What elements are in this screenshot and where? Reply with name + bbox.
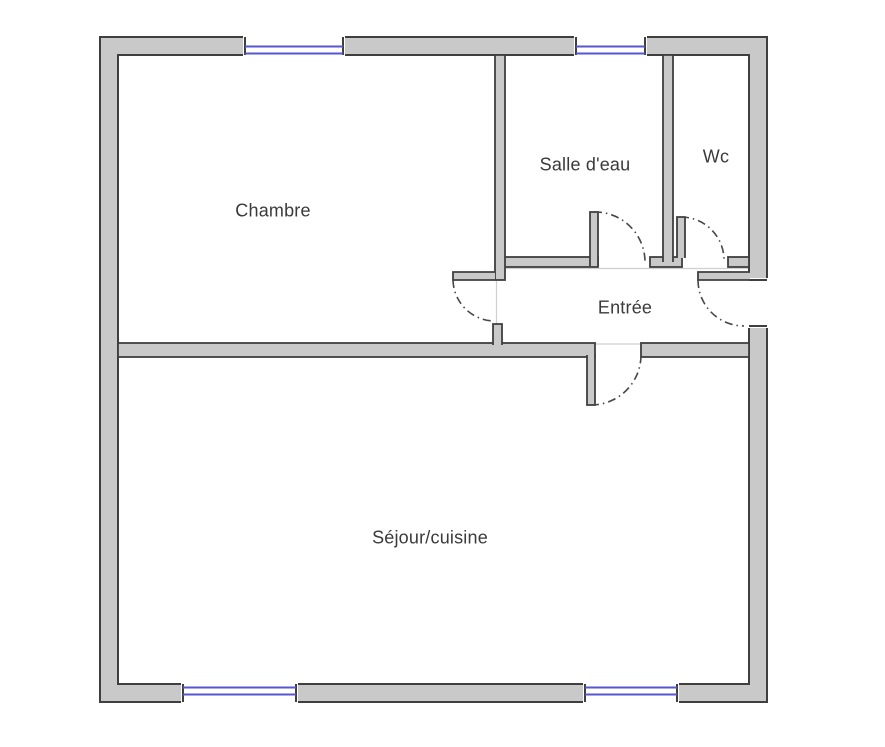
room-label-salle-deau: Salle d'eau: [540, 155, 631, 176]
interior-walls: [118, 55, 749, 357]
windows: [183, 47, 677, 695]
wall-wc-bottom-right: [728, 257, 749, 267]
wall-salledeau-bottom: [498, 257, 598, 267]
wall-middle-left: [118, 343, 595, 357]
door-leaf-sejour: [587, 355, 595, 405]
entrance-door-opening: [746, 278, 769, 328]
door-leaf-salledeau: [590, 212, 598, 266]
wall-chambre-right: [495, 55, 505, 280]
door-leaf-entrance: [698, 272, 750, 280]
bottom-window-2-opening: [583, 681, 679, 705]
room-label-chambre: Chambre: [235, 201, 310, 222]
wall-chambre-door-jamb: [493, 324, 502, 345]
room-label-entree: Entrée: [598, 298, 652, 319]
door-arc-entrance: [698, 280, 744, 326]
room-label-wc: Wc: [703, 147, 729, 168]
door-arc-sejour: [591, 355, 641, 405]
room-label-sejour-cuisine: Séjour/cuisine: [372, 528, 488, 549]
door-arc-salledeau: [594, 212, 645, 262]
wall-salledeau-wc-divider: [663, 55, 673, 262]
wall-end-caps: [183, 37, 767, 702]
door-leaf-chambre: [453, 272, 495, 280]
wall-openings: [181, 34, 769, 705]
bottom-window-1-opening: [181, 681, 298, 705]
floor-plan-drawing: [0, 0, 885, 747]
door-arc-wc: [681, 217, 724, 260]
floor-plan: Chambre Salle d'eau Wc Entrée Séjour/cui…: [0, 0, 885, 747]
door-arc-chambre: [453, 280, 494, 321]
door-leaf-wc: [677, 217, 685, 258]
wall-middle-right: [641, 343, 749, 357]
